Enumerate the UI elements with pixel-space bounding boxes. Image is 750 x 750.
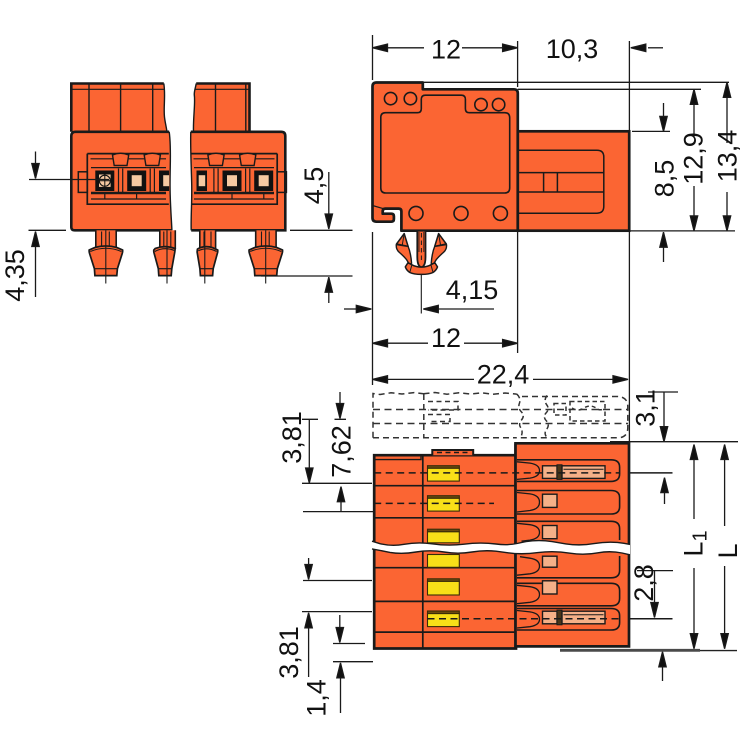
svg-text:4,5: 4,5 — [299, 167, 329, 205]
svg-text:10,3: 10,3 — [546, 34, 599, 64]
svg-text:L: L — [713, 543, 743, 558]
svg-text:22,4: 22,4 — [477, 360, 530, 390]
svg-text:12,9: 12,9 — [679, 132, 709, 185]
svg-text:4,35: 4,35 — [0, 249, 30, 302]
svg-text:13,4: 13,4 — [713, 130, 743, 183]
svg-text:2,8: 2,8 — [629, 564, 659, 602]
svg-text:4,15: 4,15 — [446, 275, 499, 305]
svg-text:8,5: 8,5 — [650, 160, 680, 198]
svg-text:12: 12 — [431, 35, 461, 65]
svg-text:7,62: 7,62 — [327, 425, 357, 478]
svg-text:3,81: 3,81 — [277, 411, 307, 464]
svg-text:1,4: 1,4 — [302, 679, 332, 717]
svg-text:12: 12 — [431, 323, 461, 353]
svg-text:3,81: 3,81 — [274, 626, 304, 679]
svg-text:3,1: 3,1 — [631, 389, 661, 427]
